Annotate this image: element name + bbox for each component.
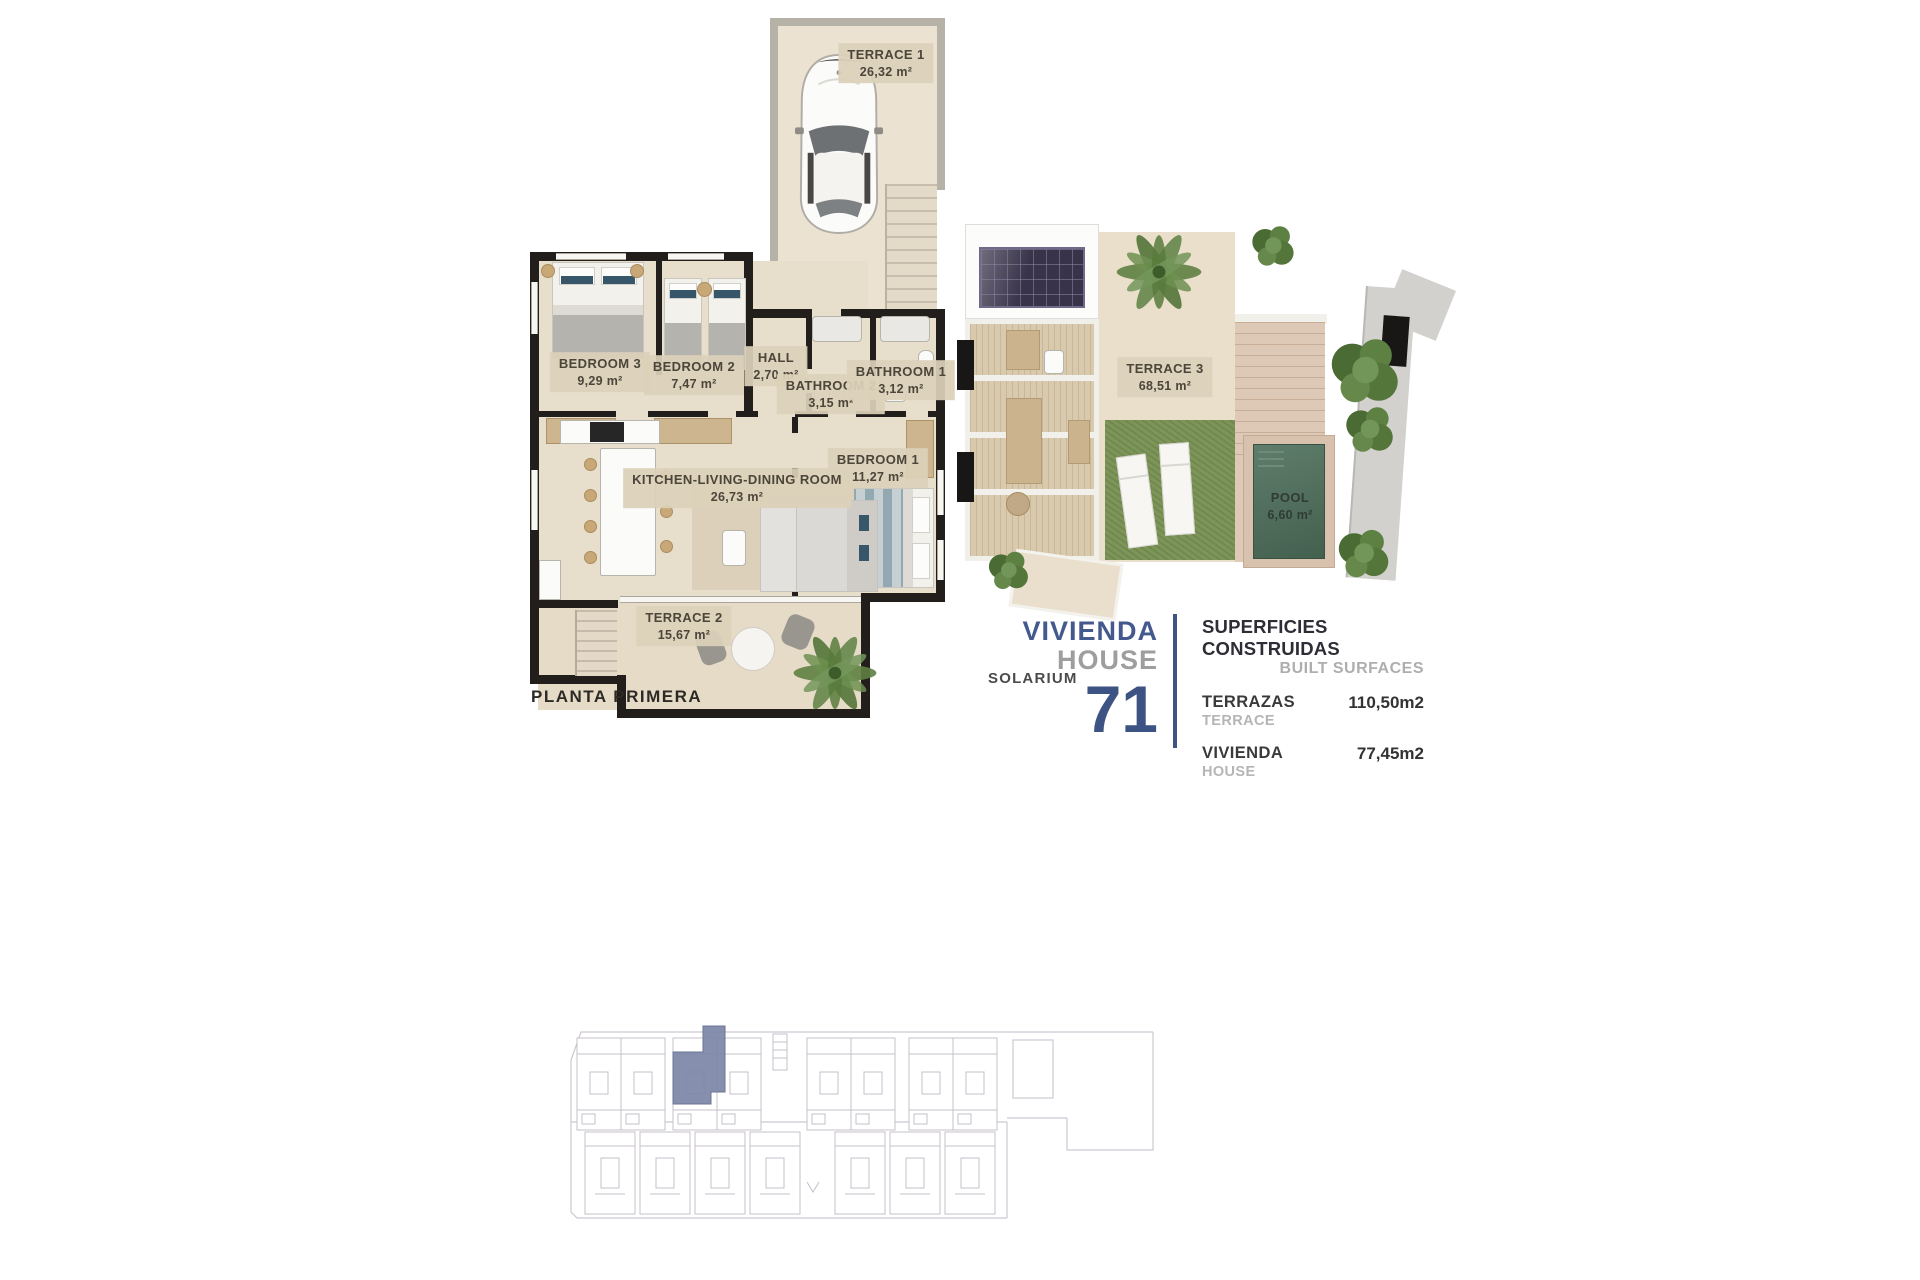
window xyxy=(556,253,626,260)
glass-doors-terrace2 xyxy=(620,596,861,603)
surface-value: 77,45m2 xyxy=(1357,744,1424,764)
room-name: TERRACE 1 xyxy=(847,47,924,64)
kitchen-cabinet xyxy=(539,560,561,600)
room-name: KITCHEN-LIVING-DINING ROOM xyxy=(632,472,842,489)
room-name: BEDROOM 3 xyxy=(559,356,641,373)
surface-label: VIVIENDA xyxy=(1202,744,1283,764)
wall xyxy=(753,309,809,318)
room-label-bedroom2: BEDROOM 2 7,47 m² xyxy=(644,355,744,395)
unit-title: VIVIENDA HOUSE 71 xyxy=(1020,616,1158,741)
room-name: TERRACE 3 xyxy=(1126,361,1203,378)
brochure-page: TERRACE 1 26,32 m² xyxy=(0,0,1920,1280)
palm-tree-icon xyxy=(1113,226,1205,318)
surface-label: TERRAZAS xyxy=(1202,693,1295,713)
nightstand xyxy=(697,282,712,297)
chair xyxy=(584,520,597,533)
room-label-bathroom1: BATHROOM 1 3,12 m² xyxy=(847,360,955,400)
surface-row-terrace: TERRAZAS 110,50m2 xyxy=(1202,693,1424,713)
room-label-terrace3: TERRACE 3 68,51 m² xyxy=(1117,357,1212,397)
coffee-table xyxy=(722,530,746,566)
room-label-pool: POOL 6,60 m² xyxy=(1258,486,1321,526)
surface-value: 110,50m2 xyxy=(1348,693,1424,713)
room-area: 6,60 m² xyxy=(1267,507,1312,523)
nightstand xyxy=(630,264,644,278)
plan-caption-planta-primera: PLANTA PRIMERA xyxy=(531,687,702,707)
window xyxy=(531,282,538,334)
wall xyxy=(928,411,936,417)
room-area: 15,67 m² xyxy=(645,627,722,643)
surfaces-heading-primary: SUPERFICIES CONSTRUIDAS xyxy=(1202,616,1424,660)
room-name: POOL xyxy=(1267,490,1312,507)
site-plan xyxy=(555,1022,1195,1262)
outdoor-chair xyxy=(1068,420,1090,464)
pergola-beam xyxy=(965,375,1099,381)
chair xyxy=(584,551,597,564)
wall xyxy=(736,411,758,417)
bed-double-bedroom3 xyxy=(552,262,644,359)
room-label-terrace2: TERRACE 2 15,67 m² xyxy=(636,606,731,646)
chair xyxy=(584,458,597,471)
dining-island-table xyxy=(600,448,656,576)
lounge-chair xyxy=(1006,330,1040,370)
window xyxy=(937,540,944,580)
terrace1-stairs xyxy=(885,184,937,314)
sofa xyxy=(760,500,878,592)
chair xyxy=(584,489,597,502)
window xyxy=(937,470,944,515)
surfaces-heading-secondary: BUILT SURFACES xyxy=(1202,660,1424,678)
side-table xyxy=(1044,350,1064,374)
room-name: TERRACE 2 xyxy=(645,610,722,627)
wall xyxy=(861,593,945,602)
terrace1-wall-right xyxy=(937,18,945,190)
interior-stairs xyxy=(575,610,617,676)
bush-icon xyxy=(1338,398,1400,460)
room-name: HALL xyxy=(753,350,798,367)
nightstand xyxy=(541,264,555,278)
surface-row-house: VIVIENDA 77,45m2 xyxy=(1202,744,1424,764)
surface-label-secondary: HOUSE xyxy=(1202,764,1424,780)
shower xyxy=(880,316,930,342)
unit-title-primary: VIVIENDA xyxy=(1020,616,1158,647)
shower xyxy=(812,316,862,342)
bush-icon xyxy=(1245,218,1300,273)
terrace1-wall-top xyxy=(770,18,945,26)
palm-tree-icon xyxy=(790,628,880,718)
window xyxy=(668,253,724,260)
chair xyxy=(660,540,673,553)
room-area: 26,32 m² xyxy=(847,64,924,80)
surface-label-secondary: TERRACE xyxy=(1202,713,1424,729)
wall xyxy=(648,411,708,417)
window xyxy=(531,470,538,530)
unit-number: 71 xyxy=(1020,678,1158,741)
terrace-table xyxy=(731,627,775,671)
built-surfaces-table: SUPERFICIES CONSTRUIDAS BUILT SURFACES T… xyxy=(1202,616,1424,780)
room-area: 26,73 m² xyxy=(632,489,842,505)
wall xyxy=(538,411,616,417)
vertical-divider xyxy=(1173,614,1177,748)
bush-icon xyxy=(1330,520,1396,586)
room-name: BEDROOM 2 xyxy=(653,359,735,376)
plant-pot xyxy=(1006,492,1030,516)
closet xyxy=(654,418,732,444)
planter-box xyxy=(957,452,974,502)
cooktop xyxy=(590,422,624,442)
bush-icon xyxy=(982,544,1034,596)
room-label-bedroom3: BEDROOM 3 9,29 m² xyxy=(550,352,650,392)
room-name: BATHROOM 1 xyxy=(856,364,946,381)
room-area: 9,29 m² xyxy=(559,373,641,389)
room-name: BEDROOM 1 xyxy=(837,452,919,469)
sun-lounger xyxy=(1159,442,1195,536)
outdoor-sofa xyxy=(1006,398,1042,484)
room-area: 7,47 m² xyxy=(653,376,735,392)
wall-stairwell xyxy=(530,600,618,608)
room-label-kitchen: KITCHEN-LIVING-DINING ROOM 26,73 m² xyxy=(623,468,851,508)
pergola-beam xyxy=(965,489,1099,495)
room-label-terrace1: TERRACE 1 26,32 m² xyxy=(838,43,933,83)
wall xyxy=(530,675,626,684)
room-area: 3,12 m² xyxy=(856,381,946,397)
wall xyxy=(792,417,798,433)
planter-box xyxy=(957,340,974,390)
solar-panel xyxy=(979,247,1085,308)
room-area: 68,51 m² xyxy=(1126,378,1203,394)
